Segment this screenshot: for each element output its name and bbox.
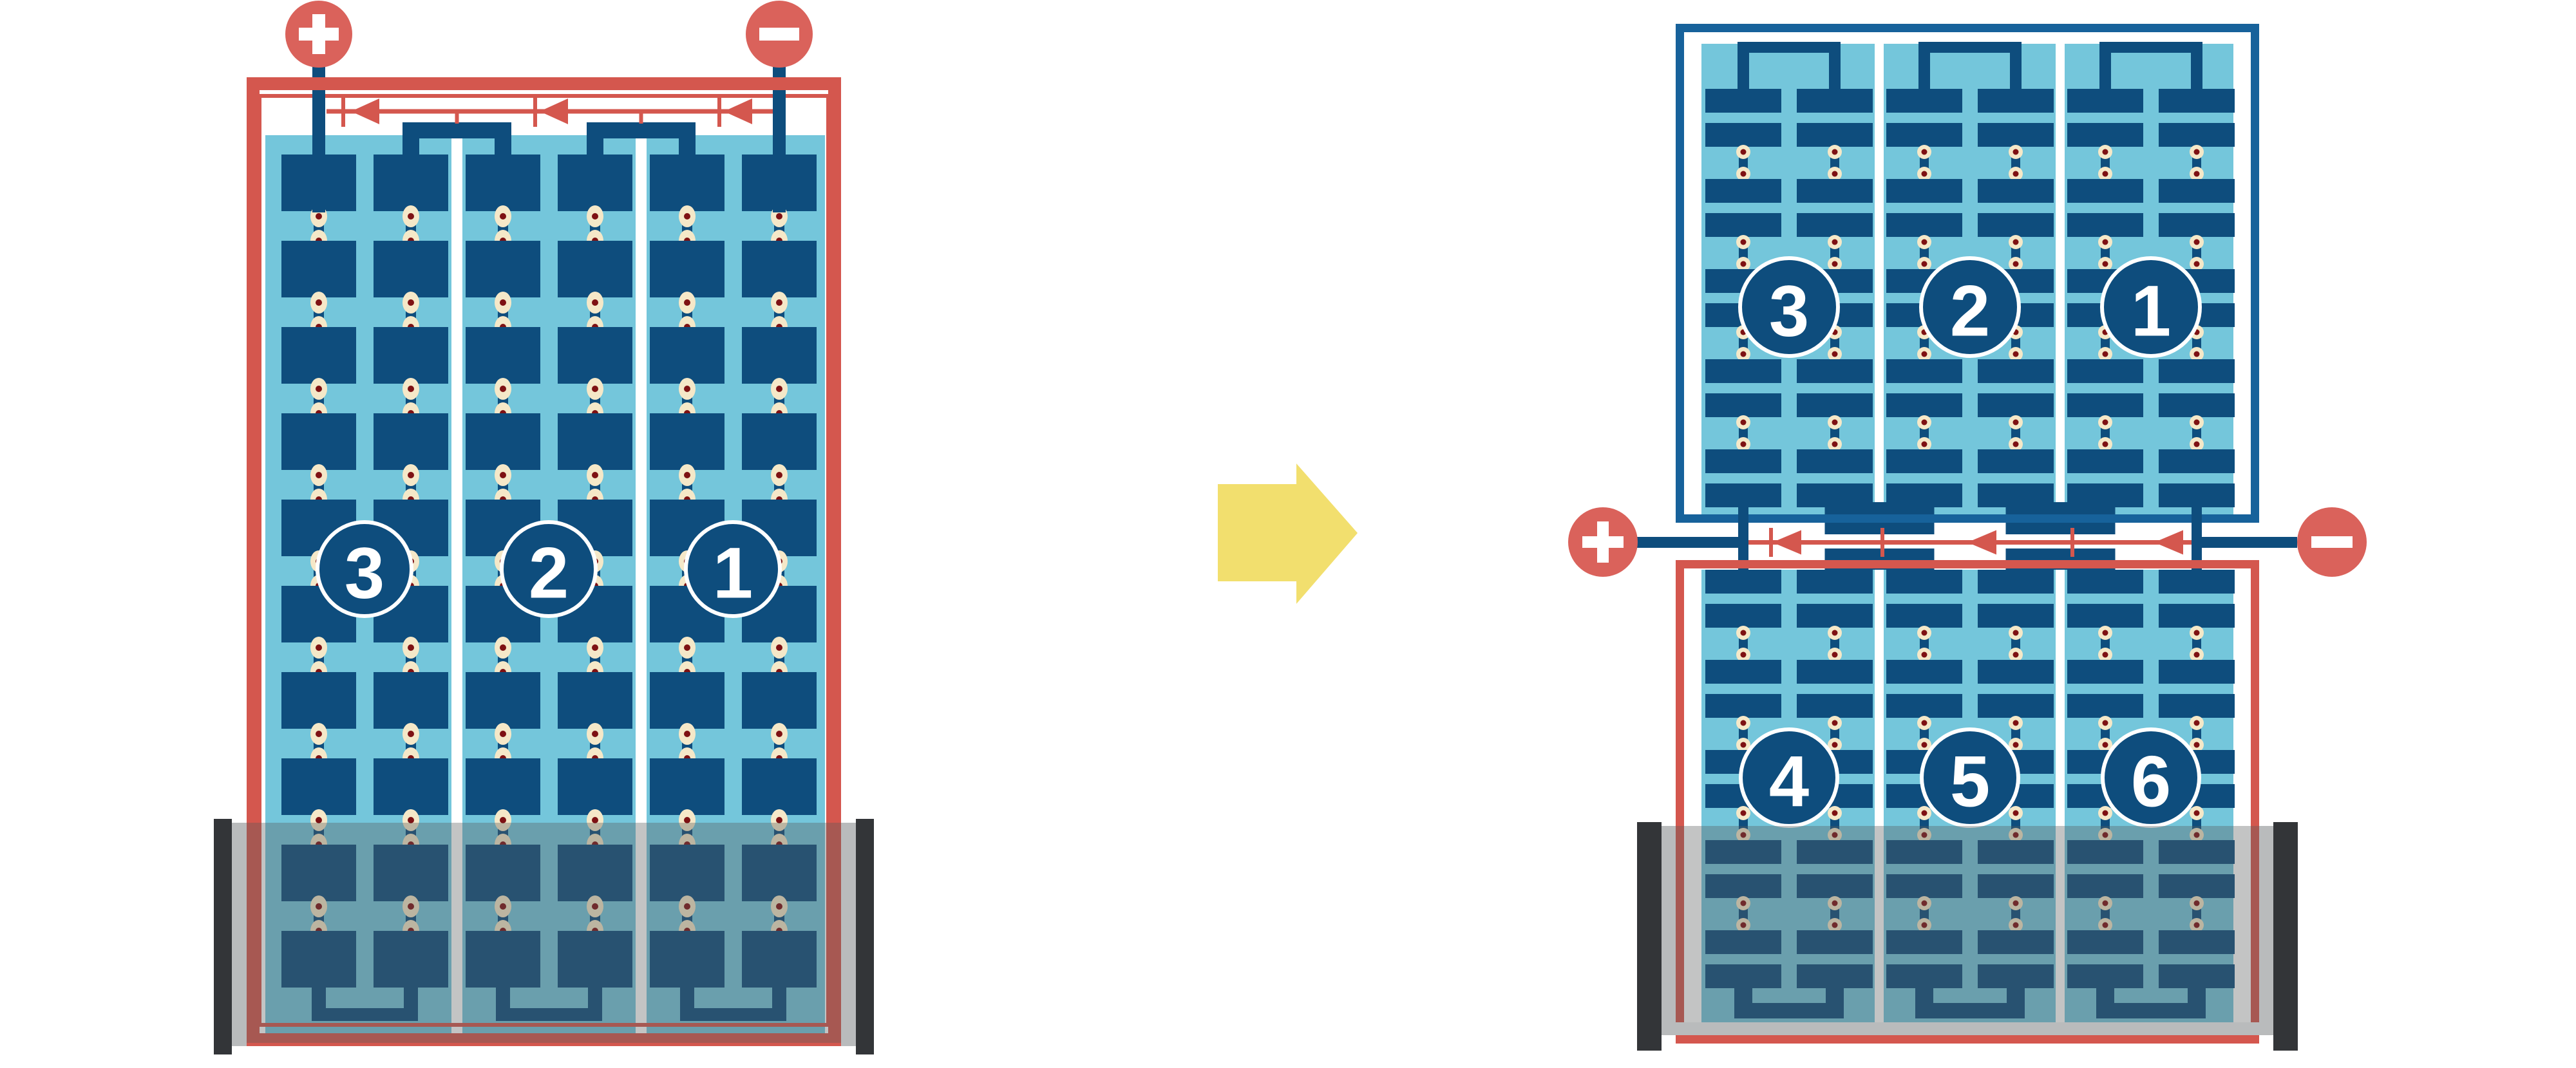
current-arrowhead [1772, 530, 1801, 555]
plate [374, 758, 448, 815]
plate [650, 327, 724, 384]
connector-dot [1832, 630, 1838, 636]
connector-dot [776, 731, 782, 737]
connector-dot [1741, 630, 1747, 636]
plate [2067, 449, 2143, 473]
terminal-negative [746, 1, 813, 68]
connector-dot [684, 386, 690, 392]
connector-dot [684, 644, 690, 651]
tray-end-cap [1637, 822, 1662, 1051]
plate [1797, 604, 1873, 628]
plate [1978, 359, 2054, 383]
connector-dot [2103, 171, 2108, 177]
plate [1978, 89, 2054, 113]
plate [2159, 694, 2235, 718]
cell-circle-2-label: 2 [1950, 271, 1990, 351]
plate [1705, 449, 1781, 473]
plate [2159, 89, 2235, 113]
plate [2159, 604, 2235, 628]
cell-circle-3-label: 3 [1769, 271, 1809, 351]
connector-dot [500, 213, 506, 220]
connector-dot [2013, 810, 2019, 816]
plate [558, 672, 632, 729]
minus-icon [759, 28, 799, 41]
connector-dot [2013, 720, 2019, 726]
plate [2067, 694, 2143, 718]
connector-dot [684, 731, 690, 737]
plate [1705, 660, 1781, 684]
plate [281, 758, 356, 815]
connector-dot [1741, 149, 1747, 155]
current-flow-line [1748, 528, 2192, 557]
connector-dot [592, 299, 598, 306]
connector-dot [2103, 351, 2108, 357]
connector-dot [1922, 239, 1927, 245]
cell-circle-4-label: 4 [1769, 742, 1809, 822]
connector-dot [2013, 239, 2019, 245]
plate [374, 413, 448, 470]
plate [1797, 694, 1873, 718]
connector-dot [2194, 652, 2200, 658]
connector-dot [1922, 171, 1927, 177]
plate [281, 413, 356, 470]
connector-dot [1832, 810, 1838, 816]
plate [1705, 359, 1781, 383]
plate [1797, 123, 1873, 147]
plate [1705, 604, 1781, 628]
plate [466, 413, 540, 470]
plus-icon [1597, 521, 1609, 563]
connector-dot [500, 731, 506, 737]
connector-dot [2013, 652, 2019, 658]
connector-dot [316, 213, 322, 220]
tray-end-cap [2273, 822, 2298, 1051]
connector-dot [1922, 351, 1927, 357]
plate [742, 672, 817, 729]
plate [2159, 123, 2235, 147]
plate [2159, 393, 2235, 417]
connector-dot [776, 817, 782, 823]
connector-dot [2194, 630, 2200, 636]
connector-dot [776, 299, 782, 306]
junction-post [1738, 523, 1748, 587]
connector-dot [1741, 652, 1747, 658]
connector-dot [1922, 810, 1927, 816]
connector-dot [2013, 442, 2019, 447]
connector-dot [1832, 442, 1838, 447]
plate [2067, 179, 2143, 203]
plate [1886, 604, 1962, 628]
arrow-head [1296, 464, 1358, 604]
plate [1797, 660, 1873, 684]
connector-dot [408, 731, 414, 737]
connector-dot [408, 386, 414, 392]
cell-circle-2-label: 2 [529, 533, 569, 614]
connector-dot [2194, 171, 2200, 177]
plate [1886, 694, 1962, 718]
current-arrowhead [1967, 530, 1996, 555]
connector-dot [1832, 239, 1838, 245]
connector-dot [2194, 442, 2200, 447]
plate [1978, 179, 2054, 203]
connector-dot [2013, 420, 2019, 426]
plate [466, 758, 540, 815]
connector-dot [592, 386, 598, 392]
connector-dot [2103, 420, 2108, 426]
plate [558, 758, 632, 815]
connector-dot [2194, 149, 2200, 155]
current-arrowhead [351, 98, 379, 124]
connector-dot [592, 817, 598, 823]
connector-dot [2194, 351, 2200, 357]
connector-dot [776, 644, 782, 651]
connector-dot [408, 213, 414, 220]
connector-dot [316, 644, 322, 651]
plate [1978, 213, 2054, 237]
plate [558, 413, 632, 470]
bottom-module: 456 [1637, 523, 2298, 1051]
diagram-svg: 321321456 [0, 0, 2576, 1068]
cell-circle-5-label: 5 [1950, 742, 1990, 822]
connector-dot [2103, 239, 2108, 245]
bridge-drop-line [639, 113, 643, 124]
left-battery: 321 [214, 1, 874, 1054]
plate [1797, 570, 1873, 594]
plate [466, 327, 540, 384]
connector-dot [316, 386, 322, 392]
connector-dot [500, 299, 506, 306]
tray-overlay [232, 823, 856, 1043]
plate [742, 241, 817, 297]
connector-dot [1922, 630, 1927, 636]
tray-wall [2259, 826, 2273, 1035]
plate [281, 327, 356, 384]
connector-dot [1741, 261, 1747, 267]
plate [650, 241, 724, 297]
plate [2159, 213, 2235, 237]
plate [466, 241, 540, 297]
connector-dot [592, 213, 598, 220]
plate [2159, 660, 2235, 684]
plate [374, 241, 448, 297]
connector-dot [500, 472, 506, 478]
terminal-negative [2297, 507, 2367, 577]
current-arrowhead [724, 98, 752, 124]
plate [1705, 393, 1781, 417]
plus-icon [312, 14, 325, 54]
plate [1978, 660, 2054, 684]
connector-dot [684, 299, 690, 306]
connector-dot [2103, 261, 2108, 267]
cell-circle-1-label: 1 [2131, 271, 2171, 351]
tick-mark [533, 97, 537, 127]
connector-dot [684, 817, 690, 823]
tray-floor [1662, 1022, 2273, 1035]
connector-dot [684, 213, 690, 220]
tick-mark [2070, 528, 2074, 557]
connector-dot [592, 731, 598, 737]
plate [374, 672, 448, 729]
plate [1886, 213, 1962, 237]
connector-dot [1832, 652, 1838, 658]
tray-overlay [1662, 826, 2273, 1035]
plate [2159, 179, 2235, 203]
right-battery: 321456 [1568, 24, 2367, 1051]
plate [1705, 694, 1781, 718]
connector-dot [2103, 149, 2108, 155]
plate [1886, 393, 1962, 417]
cell-circle-6-label: 6 [2131, 742, 2171, 822]
plate [1705, 483, 1781, 507]
connector-dot [408, 472, 414, 478]
connector-dot [2194, 239, 2200, 245]
connector-dot [316, 299, 322, 306]
plate [1797, 449, 1873, 473]
connector-dot [2103, 442, 2108, 447]
connector-dot [1741, 171, 1747, 177]
connector-dot [2013, 630, 2019, 636]
plate [650, 413, 724, 470]
plate [1978, 449, 2054, 473]
top-module: 321 [1676, 24, 2259, 560]
connector-dot [2103, 742, 2108, 748]
plate [2159, 483, 2235, 507]
connector-dot [776, 386, 782, 392]
current-flow-line [327, 97, 773, 127]
connector-dot [2013, 149, 2019, 155]
plate [1978, 604, 2054, 628]
tick-mark [341, 97, 345, 127]
connector-dot [2194, 720, 2200, 726]
connector-dot [1832, 742, 1838, 748]
plate [466, 672, 540, 729]
plate [2159, 449, 2235, 473]
connector-dot [1922, 420, 1927, 426]
connector-dot [316, 472, 322, 478]
cell-divider [1875, 44, 1884, 514]
plate [650, 672, 724, 729]
plate [742, 758, 817, 815]
connector-dot [500, 817, 506, 823]
current-arrowhead [2154, 530, 2183, 555]
connector-dot [1832, 171, 1838, 177]
connector-dot [1922, 442, 1927, 447]
connector-dot [1832, 720, 1838, 726]
plate [558, 241, 632, 297]
plate [2067, 393, 2143, 417]
plate [1797, 213, 1873, 237]
connector-dot [2103, 652, 2108, 658]
connector-dot [316, 731, 322, 737]
connector-dot [1741, 239, 1747, 245]
plate [558, 327, 632, 384]
connector-dot [1741, 351, 1747, 357]
connector-dot [1741, 742, 1747, 748]
connector-dot [2013, 742, 2019, 748]
connector-dot [2194, 420, 2200, 426]
plate [2067, 359, 2143, 383]
connector-dot [1832, 351, 1838, 357]
cell-circle-1-label: 1 [713, 533, 753, 614]
connector-dot [776, 213, 782, 220]
connector-dot [408, 644, 414, 651]
plate [1886, 123, 1962, 147]
tray-end-cap [856, 819, 874, 1054]
plate [1886, 660, 1962, 684]
plate [1705, 123, 1781, 147]
connector-dot [1922, 652, 1927, 658]
connector-dot [2013, 261, 2019, 267]
connector-dot [316, 817, 322, 823]
connector-dot [1741, 720, 1747, 726]
plate [374, 327, 448, 384]
tick-mark [717, 97, 721, 127]
bridge-drop-line [455, 113, 459, 124]
plate [1705, 89, 1781, 113]
plate [1978, 694, 2054, 718]
plate [1886, 570, 1962, 594]
plate [2067, 570, 2143, 594]
tray-wall [1662, 826, 1676, 1035]
connector-dot [1832, 149, 1838, 155]
plate [1705, 179, 1781, 203]
plate [1886, 359, 1962, 383]
connector-dot [1832, 261, 1838, 267]
connector-dot [2194, 742, 2200, 748]
cell-circle-3-label: 3 [345, 533, 384, 614]
plate [1886, 449, 1962, 473]
connector-dot [2013, 351, 2019, 357]
plate [1978, 393, 2054, 417]
current-arrowhead [540, 98, 568, 124]
minus-icon [2311, 536, 2353, 548]
tray-end-cap [214, 819, 232, 1054]
plate [1705, 213, 1781, 237]
plate [1886, 89, 1962, 113]
plate [281, 241, 356, 297]
connector-dot [2013, 171, 2019, 177]
plate [2159, 359, 2235, 383]
connector-dot [2103, 630, 2108, 636]
plate [2067, 89, 2143, 113]
connector-dot [1922, 149, 1927, 155]
terminal-positive [285, 1, 352, 68]
connector-dot [500, 644, 506, 651]
connector-dot [408, 817, 414, 823]
plate [742, 413, 817, 470]
plate [742, 327, 817, 384]
plate [650, 758, 724, 815]
connector-dot [2194, 810, 2200, 816]
plate [1797, 393, 1873, 417]
connector-dot [1741, 442, 1747, 447]
negative-bus [2192, 537, 2297, 548]
connector-dot [1922, 720, 1927, 726]
plate [2067, 604, 2143, 628]
junction-post [2192, 523, 2202, 587]
connector-dot [408, 299, 414, 306]
connector-dot [684, 472, 690, 478]
tick-mark [1880, 528, 1884, 557]
connector-dot [1922, 261, 1927, 267]
transform-arrow [1218, 464, 1358, 604]
tray-wall [841, 823, 856, 1046]
plate [2067, 660, 2143, 684]
plate [1797, 89, 1873, 113]
connector-dot [1741, 810, 1747, 816]
connector-dot [2194, 261, 2200, 267]
plate [1978, 570, 2054, 594]
connector-dot [776, 472, 782, 478]
connector-dot [592, 644, 598, 651]
cell-divider [2056, 44, 2065, 514]
connector-dot [1741, 420, 1747, 426]
connector-dot [1832, 420, 1838, 426]
plate [1797, 359, 1873, 383]
connector-dot [592, 472, 598, 478]
connector-dot [500, 386, 506, 392]
plate [281, 672, 356, 729]
connector-dot [2103, 720, 2108, 726]
plate [2067, 213, 2143, 237]
plate [1797, 179, 1873, 203]
tray-wall [232, 823, 247, 1046]
plate [2067, 123, 2143, 147]
connector-dot [2103, 810, 2108, 816]
connector-dot [1922, 742, 1927, 748]
plate [1978, 123, 2054, 147]
battery-diagram: 321321456 [0, 0, 2576, 1068]
plate [1886, 179, 1962, 203]
terminal-positive [1568, 507, 1638, 577]
